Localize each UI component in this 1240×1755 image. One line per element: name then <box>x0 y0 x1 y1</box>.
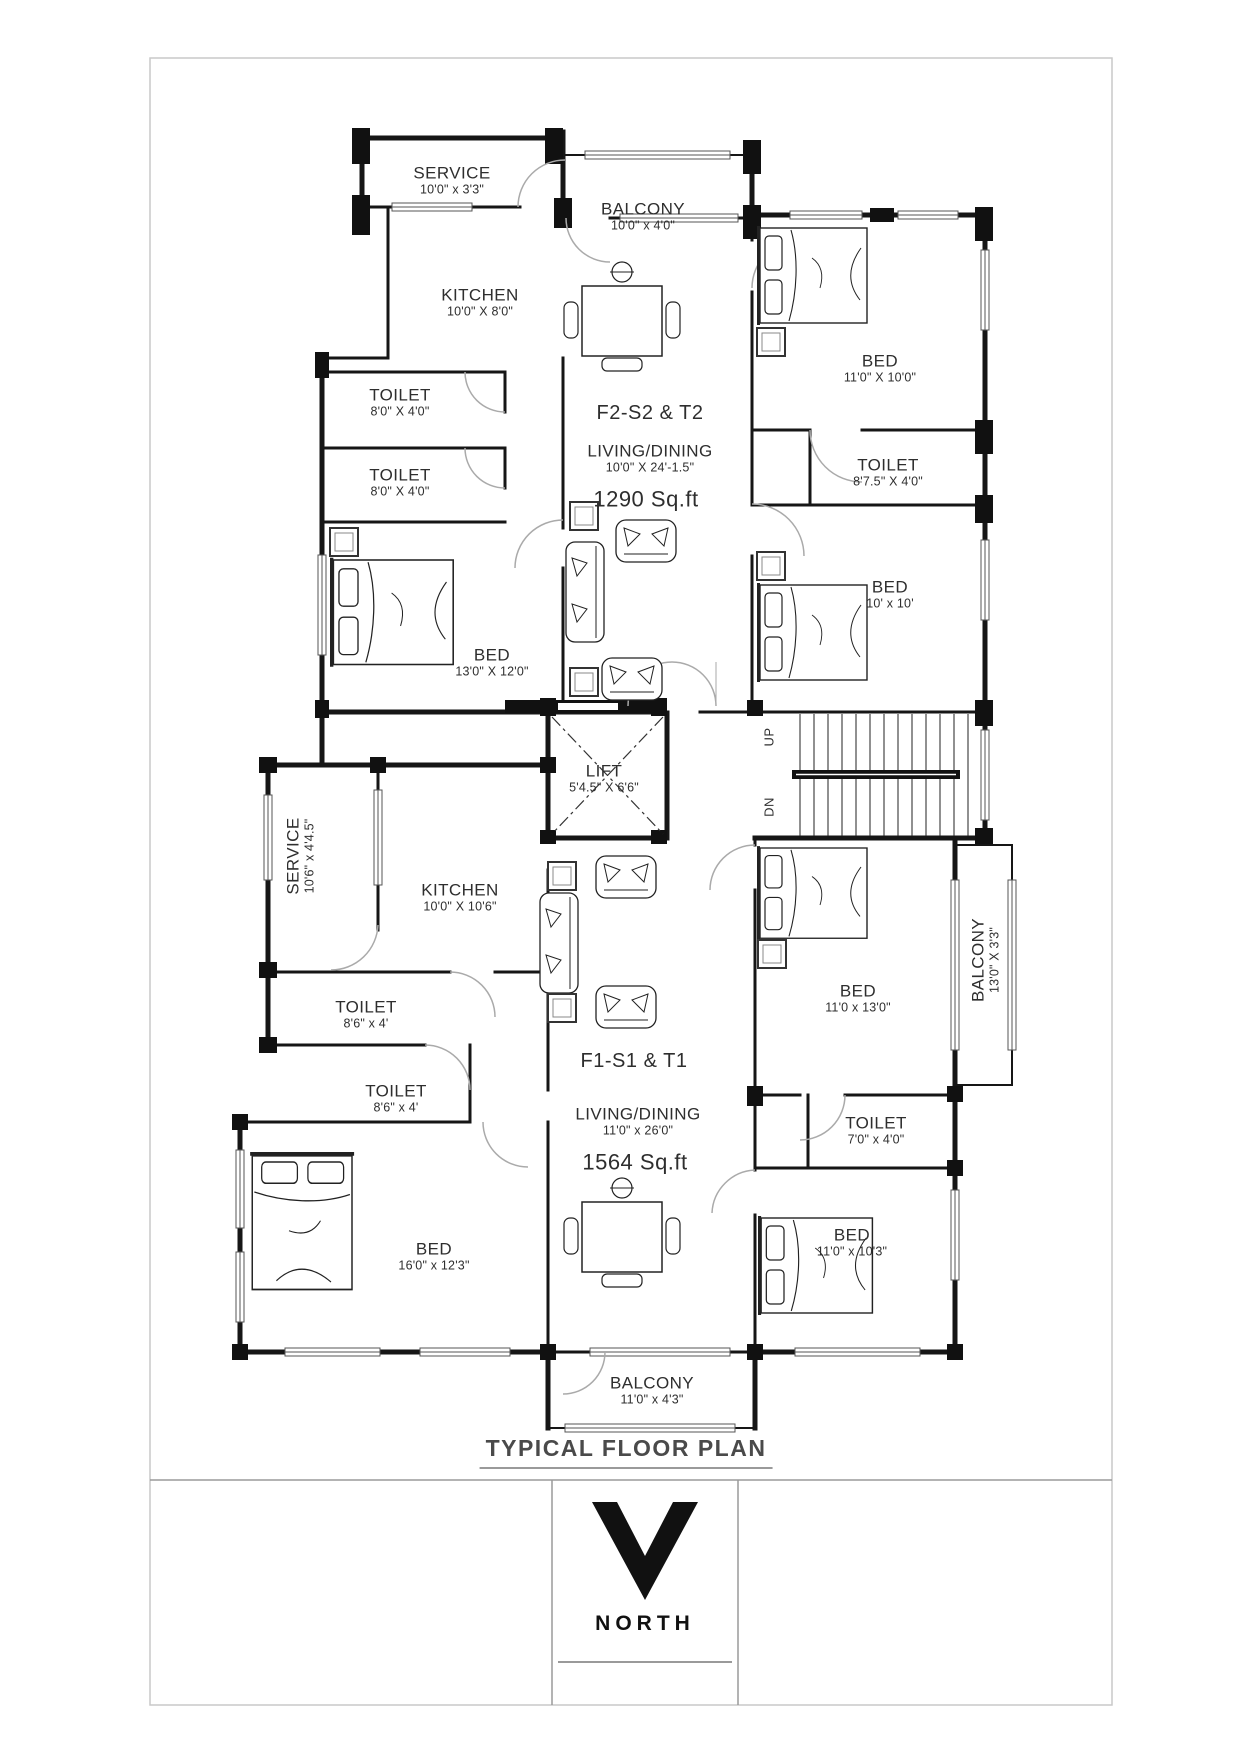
room-label-kitchen-bottom: KITCHEN 10'0" X 10'6" <box>421 880 498 913</box>
north-label: NORTH <box>595 1612 695 1636</box>
side-table-icon <box>330 528 358 556</box>
unit-label-f1: F1-S1 & T1 <box>581 1050 688 1072</box>
furniture <box>250 226 872 1315</box>
room-label-toilet-bot-1: TOILET 8'6" x 4' <box>335 997 397 1030</box>
room-label-bed-top-right: BED 11'0" X 10'0" <box>844 351 916 384</box>
room-label-toilet-top-right: TOILET 8'7.5" X 4'0" <box>853 455 923 488</box>
room-label-balcony-right: BALCONY 13'0" X 3'3" <box>968 918 1001 1002</box>
floor-plan-drawing <box>0 0 1240 1755</box>
room-label-toilet-bot-2: TOILET 8'6" x 4' <box>365 1081 427 1114</box>
room-label-balcony-bottom: BALCONY 11'0" x 4'3" <box>610 1373 694 1406</box>
bed-icon <box>250 1154 354 1290</box>
bed-icon <box>332 558 454 667</box>
sofa-icon <box>566 542 604 642</box>
room-label-kitchen-top: KITCHEN 10'0" X 8'0" <box>441 285 518 318</box>
floor-plan-page: SERVICE 10'0" x 3'3" BALCONY 10'0" x 4'0… <box>0 0 1240 1755</box>
side-table-icon <box>548 994 576 1022</box>
north-logo <box>592 1502 698 1600</box>
page-title: TYPICAL FLOOR PLAN <box>480 1435 773 1469</box>
living-label-f2: LIVING/DINING 10'0" X 24'-1.5" <box>587 441 712 474</box>
unit-label-f2: F2-S2 & T2 <box>597 402 704 424</box>
armchair-icon <box>596 856 656 898</box>
room-label-bed-mid-right: BED 10' x 10' <box>866 577 914 610</box>
dining-set-icon <box>564 1178 680 1287</box>
lobby-wall <box>505 700 667 713</box>
stairs-up-label: UP <box>763 727 778 746</box>
room-label-toilet-top-1: TOILET 8'0" X 4'0" <box>369 385 431 418</box>
room-label-balcony-top: BALCONY 10'0" x 4'0" <box>601 199 685 232</box>
side-table-icon <box>570 668 598 696</box>
dining-set-icon <box>564 262 680 371</box>
bed-icon <box>759 226 868 325</box>
room-label-toilet-top-2: TOILET 8'0" X 4'0" <box>369 465 431 498</box>
room-label-bed-bot-left: BED 16'0" x 12'3" <box>398 1239 469 1272</box>
room-label-bed-right-upper: BED 11'0 x 13'0" <box>825 981 891 1014</box>
armchair-icon <box>596 986 656 1028</box>
room-label-service-top: SERVICE 10'0" x 3'3" <box>413 163 490 196</box>
stairs-dn-label: DN <box>763 797 778 817</box>
bed-icon <box>759 583 868 682</box>
armchair-icon <box>602 658 662 700</box>
room-label-lift: LIFT 5'4.5" X 6'6" <box>569 761 639 794</box>
sofa-icon <box>540 893 578 993</box>
side-table-icon <box>757 552 785 580</box>
room-label-toilet-bot-right: TOILET 7'0" x 4'0" <box>845 1113 907 1146</box>
room-label-bed-bot-right: BED 11'0" x 10'3" <box>817 1225 887 1258</box>
living-label-f1: LIVING/DINING 11'0" x 26'0" <box>575 1104 700 1137</box>
side-table-icon <box>548 862 576 890</box>
armchair-icon <box>616 520 676 562</box>
bed-icon <box>759 846 868 940</box>
area-label-f1: 1564 Sq.ft <box>582 1151 687 1176</box>
room-label-bed-mid-left: BED 13'0" X 12'0" <box>455 645 528 678</box>
room-label-service-bottom: SERVICE 10'6" x 4'4.5" <box>283 817 316 894</box>
side-table-icon <box>758 940 786 968</box>
staircase <box>792 714 968 836</box>
side-table-icon <box>757 328 785 356</box>
area-label-f2: 1290 Sq.ft <box>593 488 698 513</box>
